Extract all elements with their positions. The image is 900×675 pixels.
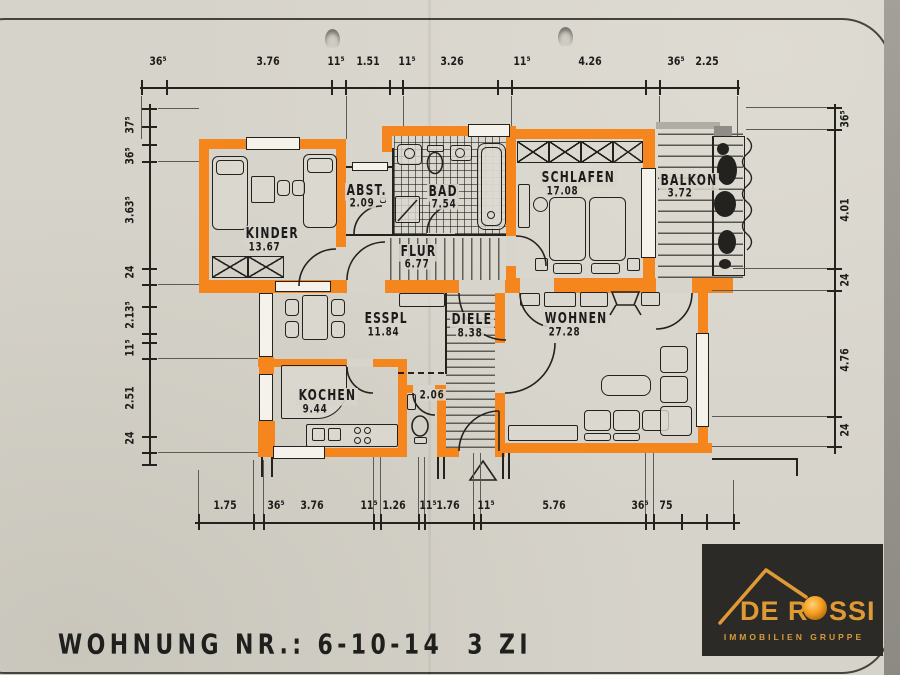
scanned-floor-plan-page: KINDER 13.67 ABST. 2.09 BAD 7.54 FLUR 6.… (0, 0, 900, 675)
room-area-wohnen: 27.28 (547, 326, 582, 338)
window (696, 333, 709, 427)
bad-sink-drain (404, 148, 415, 159)
extension-line (158, 108, 199, 109)
window (352, 162, 388, 171)
dimension-tick (331, 80, 333, 95)
logo-text-de: DE (740, 596, 780, 626)
wall-segment (437, 448, 459, 457)
dimension-tick (424, 514, 426, 530)
dimension-tick (827, 268, 842, 270)
logo-tagline: IMMOBILIEN GRUPPE (724, 632, 864, 642)
dimension-label: 11⁵ (327, 56, 344, 68)
dimension-tick (827, 290, 842, 292)
dimension-tick (706, 514, 708, 530)
wall-line (392, 148, 394, 234)
dimension-line-right (834, 104, 836, 454)
door-opening (495, 343, 505, 393)
dimension-label: 3.26 (440, 56, 463, 68)
wohnen-sofa-edge (584, 433, 611, 441)
dimension-tick (659, 80, 661, 95)
esspl-chair (285, 299, 299, 316)
wohnen-sideboard (544, 292, 576, 307)
dimension-label: 11⁵ (419, 500, 436, 512)
dimension-label: 4.01 (839, 198, 851, 221)
dimension-tick (142, 342, 157, 344)
dimension-tick (380, 514, 382, 530)
schlafen-nightstand (535, 258, 548, 271)
dimension-label: 3.63⁵ (124, 196, 136, 223)
door-opening (347, 359, 373, 367)
dimension-tick (253, 514, 255, 530)
door-opening (656, 278, 692, 293)
extension-line (158, 161, 199, 162)
dimension-label: 75 (659, 500, 672, 512)
wall-line (502, 453, 504, 479)
wohnen-coffee-table (601, 375, 651, 396)
dimension-tick (511, 80, 513, 95)
window (246, 137, 300, 150)
kochen-burner (354, 437, 361, 444)
bad-tub-drain (487, 211, 495, 219)
wall-segment (497, 443, 712, 453)
esspl-sideboard (399, 293, 445, 307)
dimension-label: 5.76 (542, 500, 565, 512)
dimension-tick (198, 514, 200, 530)
kinder-pillow (307, 158, 333, 173)
window (259, 374, 273, 421)
kochen-burner (364, 437, 371, 444)
room-area-diele: 8.38 (456, 327, 484, 339)
dimension-label: 2.25 (695, 56, 718, 68)
dimension-label: 36⁵ (839, 110, 851, 127)
esspl-chair (331, 321, 345, 338)
door-opening (520, 278, 554, 293)
dimension-label: 36⁵ (124, 147, 136, 164)
extension-line (403, 96, 404, 126)
extension-line (346, 96, 347, 139)
extension-line (712, 416, 834, 417)
schlafen-footbox (591, 263, 620, 274)
wohnen-sofa-cushion (660, 346, 688, 373)
dimension-label: 2.51 (124, 386, 136, 409)
dimension-tick (142, 358, 157, 360)
dimension-label: 1.51 (356, 56, 379, 68)
dimension-line-bottom (195, 522, 740, 524)
schlafen-stool (533, 197, 548, 212)
room-area-abst: 2.09 (348, 197, 376, 209)
extension-line (158, 452, 258, 453)
wohnen-bench (508, 425, 578, 441)
wohnen-sofa-cushion (613, 410, 640, 431)
window (468, 124, 510, 137)
dimension-tick (737, 80, 739, 95)
wohnen-sofa-edge (613, 433, 640, 441)
room-area-balkon: 3.72 (666, 187, 694, 199)
wall-line (508, 453, 510, 479)
extension-line (253, 460, 254, 522)
door-opening (347, 280, 385, 293)
extension-line (158, 284, 199, 285)
dimension-tick (733, 514, 735, 530)
bad-sink-drain (455, 148, 465, 158)
kochen-burner (354, 427, 361, 434)
dimension-tick (827, 129, 842, 131)
room-area-bad: 7.54 (430, 198, 458, 210)
dimension-tick (373, 514, 375, 530)
extension-line (263, 460, 264, 522)
dimension-label: 11⁵ (513, 56, 530, 68)
extension-line (737, 96, 738, 136)
dimension-label: 1.75 (213, 500, 236, 512)
dimension-label: 2.13⁵ (124, 301, 136, 328)
dimension-tick (402, 80, 404, 95)
dimension-label: 4.26 (578, 56, 601, 68)
dimension-tick (645, 80, 647, 95)
logo-sun-icon (803, 596, 827, 620)
dimension-label: 3.76 (256, 56, 279, 68)
dimension-tick (645, 514, 647, 530)
window (273, 446, 325, 459)
dimension-tick (142, 284, 157, 286)
wc-toilet-base (414, 437, 427, 444)
dimension-label: 24 (124, 431, 136, 444)
extension-line (373, 457, 374, 522)
extension-line (712, 290, 834, 291)
dimension-label: 36⁵ (149, 56, 166, 68)
dimension-tick (142, 126, 157, 128)
room-area-wc: 2.06 (418, 389, 446, 401)
dimension-label: 24 (124, 265, 136, 278)
bad-toilet-tank (427, 145, 444, 152)
wardrobe (581, 141, 613, 163)
dimension-tick (653, 514, 655, 530)
dimension-label: 4.76 (839, 348, 851, 371)
extension-line (158, 358, 258, 359)
kinder-chair (292, 180, 305, 196)
schlafen-footbox (553, 263, 582, 274)
wall-line (271, 457, 273, 477)
balcony-planter (712, 136, 745, 276)
dimension-tick (263, 514, 265, 530)
room-area-schlafen: 17.08 (545, 185, 580, 197)
kinder-chair (277, 180, 290, 196)
room-area-flur: 6.77 (403, 258, 431, 270)
dimension-tick (473, 514, 475, 530)
dimension-tick (142, 333, 157, 335)
wohnen-sideboard (580, 292, 608, 307)
dimension-label: 3.76 (300, 500, 323, 512)
door-opening (336, 247, 346, 280)
dimension-tick (827, 107, 842, 109)
wohnen-sofa-cushion (660, 376, 688, 403)
kochen-burner (364, 427, 371, 434)
extension-line (733, 268, 833, 269)
dimension-tick (166, 80, 168, 95)
logo-text-ssi: SSI (829, 596, 876, 626)
dimension-tick (480, 514, 482, 530)
dimension-tick (142, 306, 157, 308)
extension-line (653, 453, 654, 522)
door-opening (506, 236, 516, 266)
dimension-tick (827, 446, 842, 448)
schlafen-nightstand (627, 258, 640, 271)
dimension-label: 36⁵ (631, 500, 648, 512)
dimension-tick (497, 80, 499, 95)
dimension-tick (827, 416, 842, 418)
schlafen-bed (549, 197, 586, 261)
dimension-tick (142, 108, 157, 110)
dimension-tick (141, 80, 143, 95)
dimension-label: 36⁵ (267, 500, 284, 512)
esspl-table (302, 295, 328, 340)
wardrobe (517, 141, 549, 163)
dimension-tick (142, 144, 157, 146)
esspl-chair (331, 299, 345, 316)
esspl-chair (285, 321, 299, 338)
dimension-tick (142, 452, 157, 454)
dimension-tick (681, 514, 683, 530)
derossi-logo: DE R SSI IMMOBILIEN GRUPPE (702, 544, 883, 656)
wardrobe (248, 256, 284, 278)
dimension-label: 24 (839, 273, 851, 286)
wall-line (445, 293, 447, 374)
room-area-kinder: 13.67 (247, 241, 282, 253)
dimension-label: 1.26 (382, 500, 405, 512)
dimension-tick (142, 436, 157, 438)
extension-line (712, 446, 834, 447)
dimension-label: 1.76 (436, 500, 459, 512)
extension-line (511, 96, 512, 126)
balcony-ledge (656, 122, 720, 129)
door-opening (459, 280, 505, 293)
schlafen-dresser (518, 184, 530, 228)
extension-line (473, 453, 474, 522)
wall-line (796, 458, 798, 476)
dimension-tick (142, 464, 157, 466)
wall-line (346, 234, 394, 236)
dimension-tick (418, 514, 420, 530)
dimension-tick (389, 80, 391, 95)
kinder-pillow (216, 160, 244, 175)
wohnen-sofa-corner (660, 406, 692, 436)
kochen-sink (328, 428, 341, 441)
page-title: WOHNUNG NR.: 6-10-14 3 ZI (58, 628, 532, 660)
wohnen-sideboard (641, 292, 660, 306)
dimension-label: 37⁵ (124, 116, 136, 133)
dimension-line-top (140, 87, 740, 89)
extension-line (141, 96, 142, 139)
extension-line (418, 457, 419, 522)
dimension-label: 11⁵ (477, 500, 494, 512)
dimension-label: 11⁵ (360, 500, 377, 512)
ceiling-beam-dashed (398, 372, 444, 374)
wall-line (392, 234, 506, 236)
wall-line (712, 458, 798, 460)
wall-segment (506, 129, 651, 139)
room-area-esspl: 11.84 (366, 326, 401, 338)
wall-segment (398, 367, 407, 457)
room-area-kochen: 9.44 (301, 403, 329, 415)
dimension-tick (142, 268, 157, 270)
dimension-label: 11⁵ (124, 339, 136, 356)
wall-line (437, 457, 439, 479)
extension-line (746, 107, 834, 108)
extension-line (659, 96, 660, 122)
wall-segment (506, 126, 516, 293)
dimension-tick (345, 80, 347, 95)
extension-line (424, 457, 425, 522)
window (641, 168, 656, 258)
bad-washer (395, 196, 420, 223)
wardrobe (613, 141, 643, 163)
wall-segment (199, 139, 209, 293)
wardrobe (212, 256, 248, 278)
dimension-tick (142, 161, 157, 163)
dimension-label: 24 (839, 423, 851, 436)
wardrobe (549, 141, 581, 163)
schlafen-bed (589, 197, 626, 261)
extension-line (380, 457, 381, 522)
wall-line (443, 457, 445, 479)
window (275, 281, 331, 292)
kinder-table (251, 176, 275, 203)
wohnen-sofa-cushion (584, 410, 611, 431)
photo-edge (884, 0, 900, 675)
wohnen-sideboard (520, 293, 540, 306)
dimension-label: 11⁵ (398, 56, 415, 68)
dimension-label: 36⁵ (667, 56, 684, 68)
window (259, 293, 273, 357)
extension-line (746, 129, 834, 130)
wc-sink (407, 394, 416, 410)
kochen-sink (312, 428, 325, 441)
